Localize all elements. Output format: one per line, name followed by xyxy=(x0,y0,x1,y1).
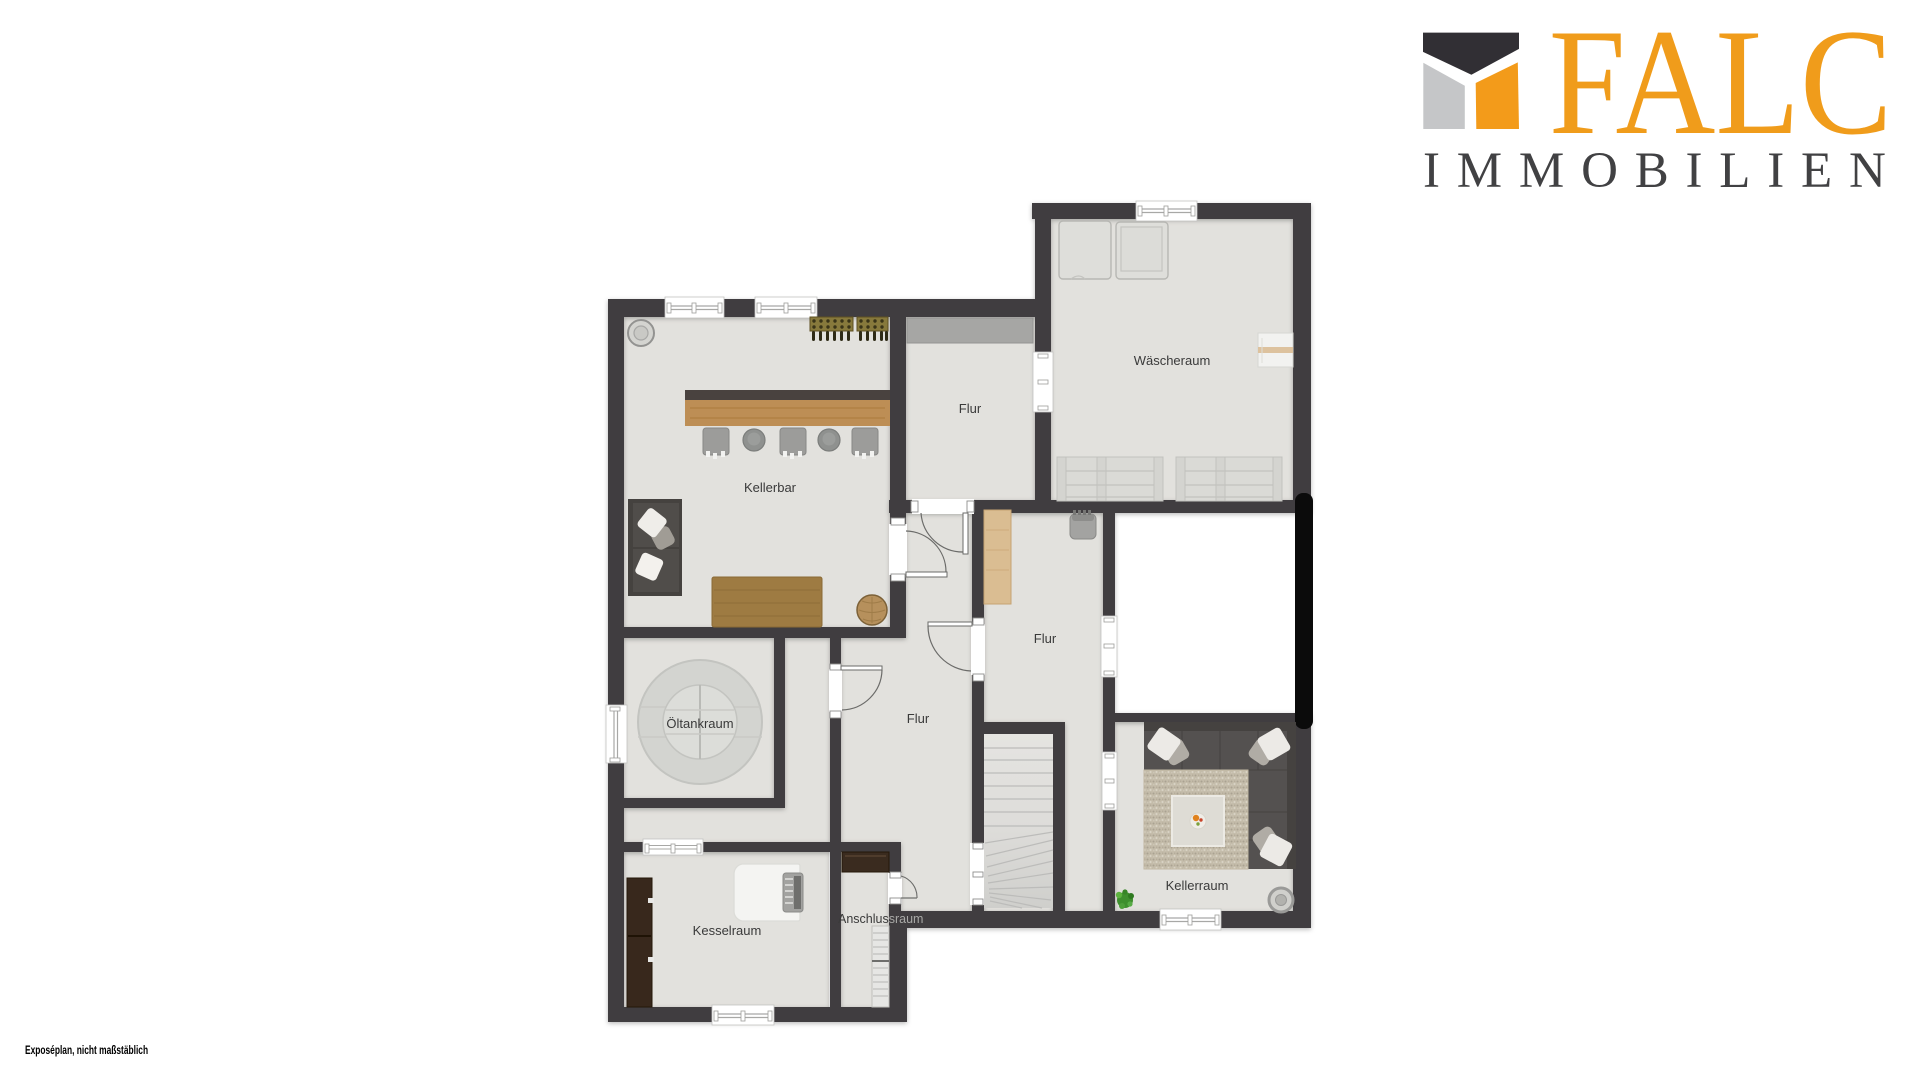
svg-text:Exposéplan, nicht maßstäblich: Exposéplan, nicht maßstäblich xyxy=(25,1045,148,1058)
svg-text:Kellerraum: Kellerraum xyxy=(1166,878,1229,893)
svg-text:Flur: Flur xyxy=(959,401,982,416)
svg-text:FALC: FALC xyxy=(1549,0,1893,166)
svg-text:Flur: Flur xyxy=(1034,631,1057,646)
svg-text:Kellerbar: Kellerbar xyxy=(744,480,797,495)
svg-text:Wäscheraum: Wäscheraum xyxy=(1134,353,1211,368)
svg-text:Flur: Flur xyxy=(907,711,930,726)
svg-text:Kesselraum: Kesselraum xyxy=(693,923,762,938)
svg-text:Öltankraum: Öltankraum xyxy=(666,716,733,731)
svg-text:IMMOBILIEN: IMMOBILIEN xyxy=(1423,143,1903,199)
